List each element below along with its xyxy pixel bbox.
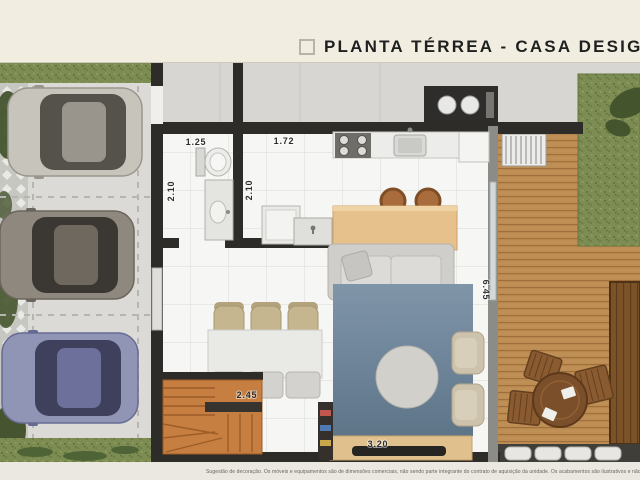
outdoor-round-table (533, 373, 587, 427)
dim-laundry-width: 1.72 (274, 136, 295, 146)
footer-strip: Sugestão de decoração. Os móveis e equip… (0, 462, 640, 480)
round-pouf (376, 346, 438, 408)
staircase (163, 372, 263, 454)
plan-title: PLANTA TÉRREA - CASA DESIGN (299, 37, 640, 57)
tv (352, 446, 446, 456)
grass-strip-top-left (0, 62, 158, 83)
patio-divider-wall (233, 62, 243, 132)
bookshelf (318, 402, 333, 460)
car-gray (0, 208, 134, 302)
armchair-top (452, 332, 484, 374)
dim-living-width: 3.20 (368, 439, 389, 449)
plan-title-label: PLANTA TÉRREA - CASA DESIGN (324, 37, 640, 57)
disclaimer-text: Sugestão de decoração. Os móveis e equip… (206, 469, 640, 475)
title-square-icon (299, 39, 315, 55)
left-window (152, 268, 162, 330)
bath-wall-stub (163, 238, 179, 248)
laundry-counter (294, 218, 332, 245)
car-silver (8, 85, 142, 179)
armchair-bottom (452, 384, 484, 426)
dim-living-depth: 6.45 (481, 280, 491, 301)
dim-bathroom-width: 1.25 (186, 137, 207, 147)
dim-bathroom-depth: 2.10 (166, 181, 176, 202)
stair-rail (205, 402, 262, 412)
side-gate-opening (151, 86, 163, 124)
louver-bench (502, 134, 546, 166)
white-dining-table (208, 330, 322, 378)
tv-console (330, 436, 472, 460)
car-blue (2, 330, 138, 426)
dim-dining-width: 2.45 (237, 390, 258, 400)
floor-plan: 1.25 1.72 2.10 2.10 2.45 3.20 6.45 (0, 0, 640, 480)
bathroom-vanity (205, 180, 233, 240)
dim-laundry-depth: 2.10 (244, 180, 254, 201)
kitchen-cabinet (459, 132, 489, 162)
stove (335, 133, 371, 158)
toilet (196, 148, 231, 176)
deck-inset-dark (610, 282, 640, 444)
title-banner: PLANTA TÉRREA - CASA DESIGN (0, 0, 640, 63)
utility-box (424, 86, 498, 124)
bathroom-divider-wall (233, 132, 243, 238)
